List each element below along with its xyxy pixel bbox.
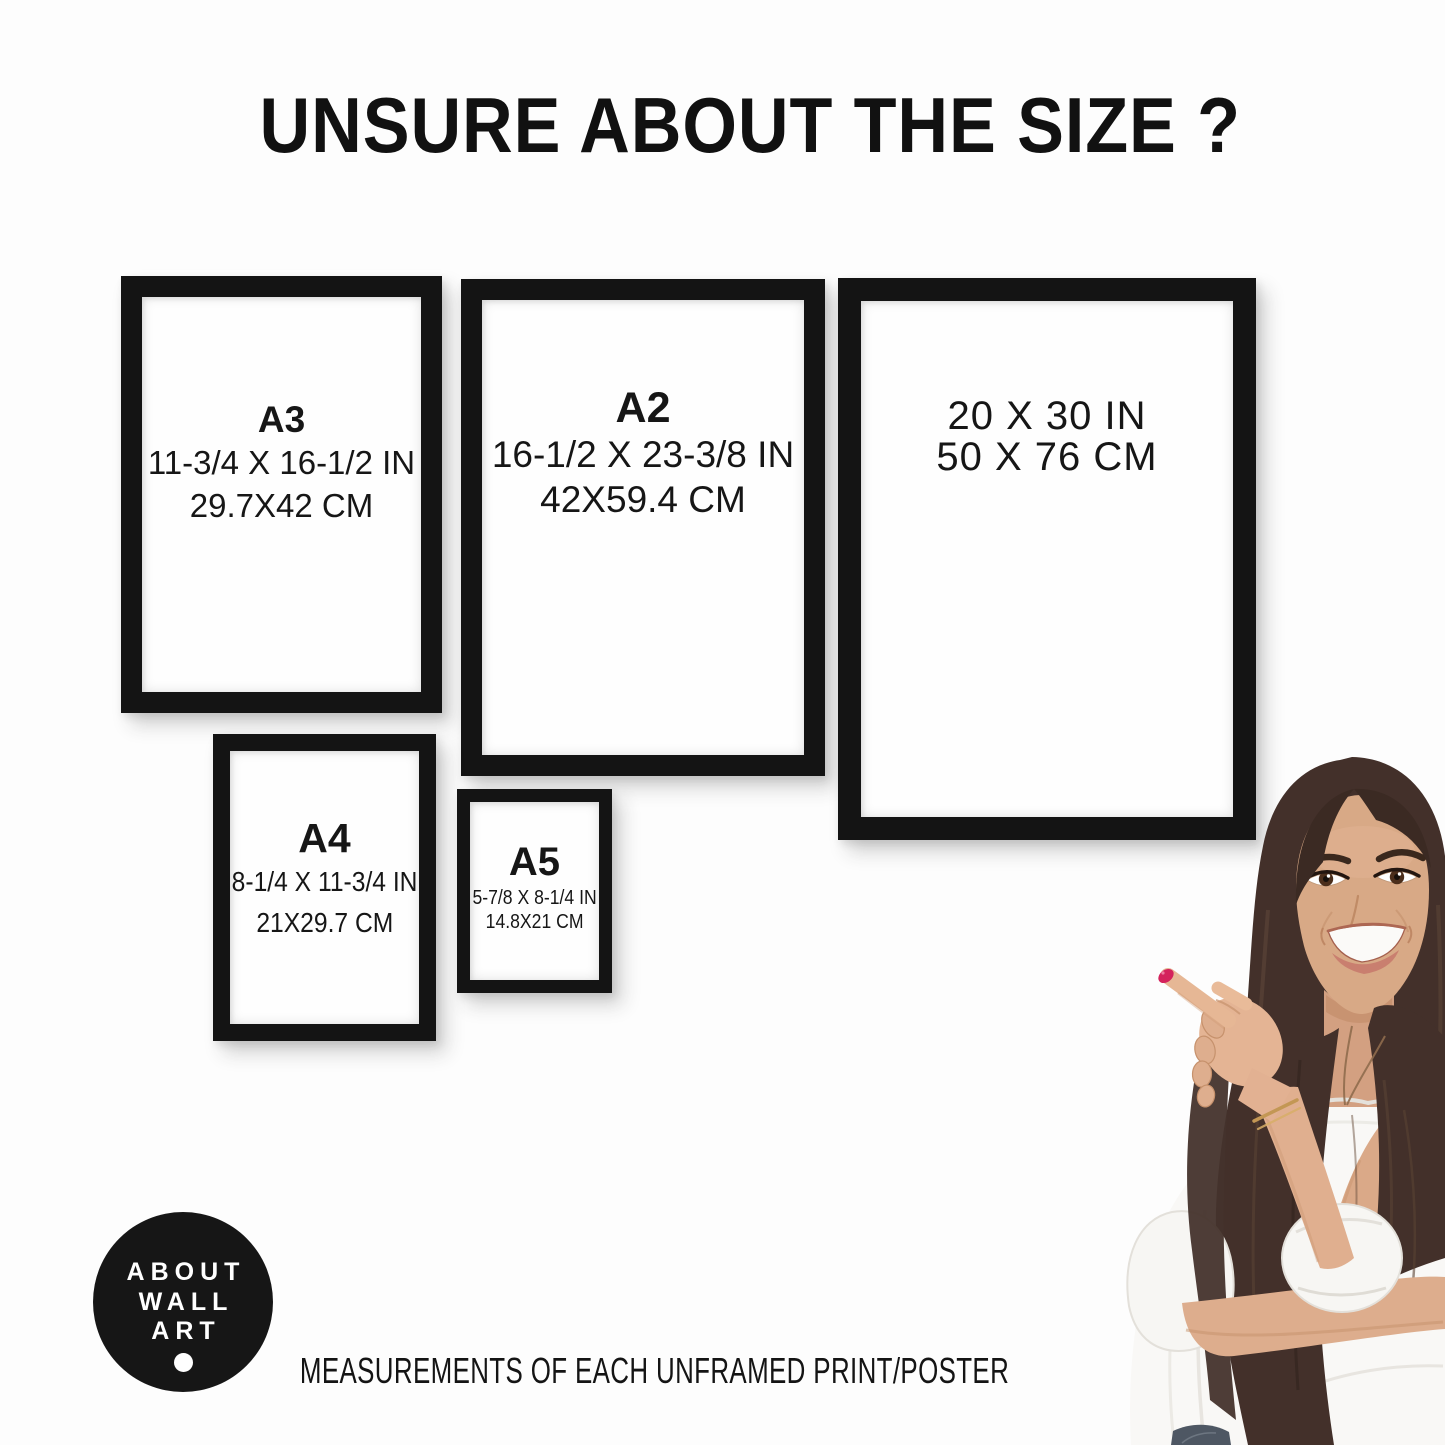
curled-finger (1192, 1061, 1212, 1088)
frame-a4: A4 8-1/4 X 11-3/4 IN 21X29.7 CM (213, 734, 436, 1041)
size-label: A4 (298, 815, 350, 861)
size-label: A2 (616, 384, 671, 432)
size-inches: 11-3/4 X 16-1/2 IN (148, 442, 415, 484)
size-cm: 21X29.7 CM (256, 903, 393, 943)
woman-pointing-illustration (1000, 755, 1445, 1445)
frame-a3: A3 11-3/4 X 16-1/2 IN 29.7X42 CM (121, 276, 442, 713)
logo-line: ABOUT (93, 1258, 273, 1288)
size-inches: 16-1/2 X 23-3/8 IN (492, 432, 794, 477)
size-inches: 5-7/8 X 8-1/4 IN (472, 884, 596, 912)
frame-a5: A5 5-7/8 X 8-1/4 IN 14.8X21 CM (457, 789, 612, 993)
page-title: UNSURE ABOUT THE SIZE ? (55, 86, 1445, 164)
frame-a2: A2 16-1/2 X 23-3/8 IN 42X59.4 CM (461, 279, 825, 776)
page-title-text: UNSURE ABOUT THE SIZE ? (259, 86, 1240, 164)
logo-line: WALL (93, 1288, 273, 1318)
size-guide-poster: UNSURE ABOUT THE SIZE ? A3 11-3/4 X 16-1… (0, 0, 1445, 1445)
size-cm: 42X59.4 CM (540, 477, 746, 522)
size-cm: 29.7X42 CM (190, 484, 373, 527)
size-label: A3 (258, 398, 305, 442)
size-cm: 50 X 76 CM (936, 437, 1157, 478)
size-inches: 20 X 30 IN (947, 396, 1146, 437)
size-label: A5 (509, 840, 560, 884)
logo-line: ART (93, 1317, 273, 1347)
size-inches: 8-1/4 X 11-3/4 IN (232, 861, 418, 903)
footer-caption-text: MEASUREMENTS OF EACH UNFRAMED PRINT/POST… (300, 1350, 1009, 1392)
size-cm: 14.8X21 CM (486, 912, 584, 932)
